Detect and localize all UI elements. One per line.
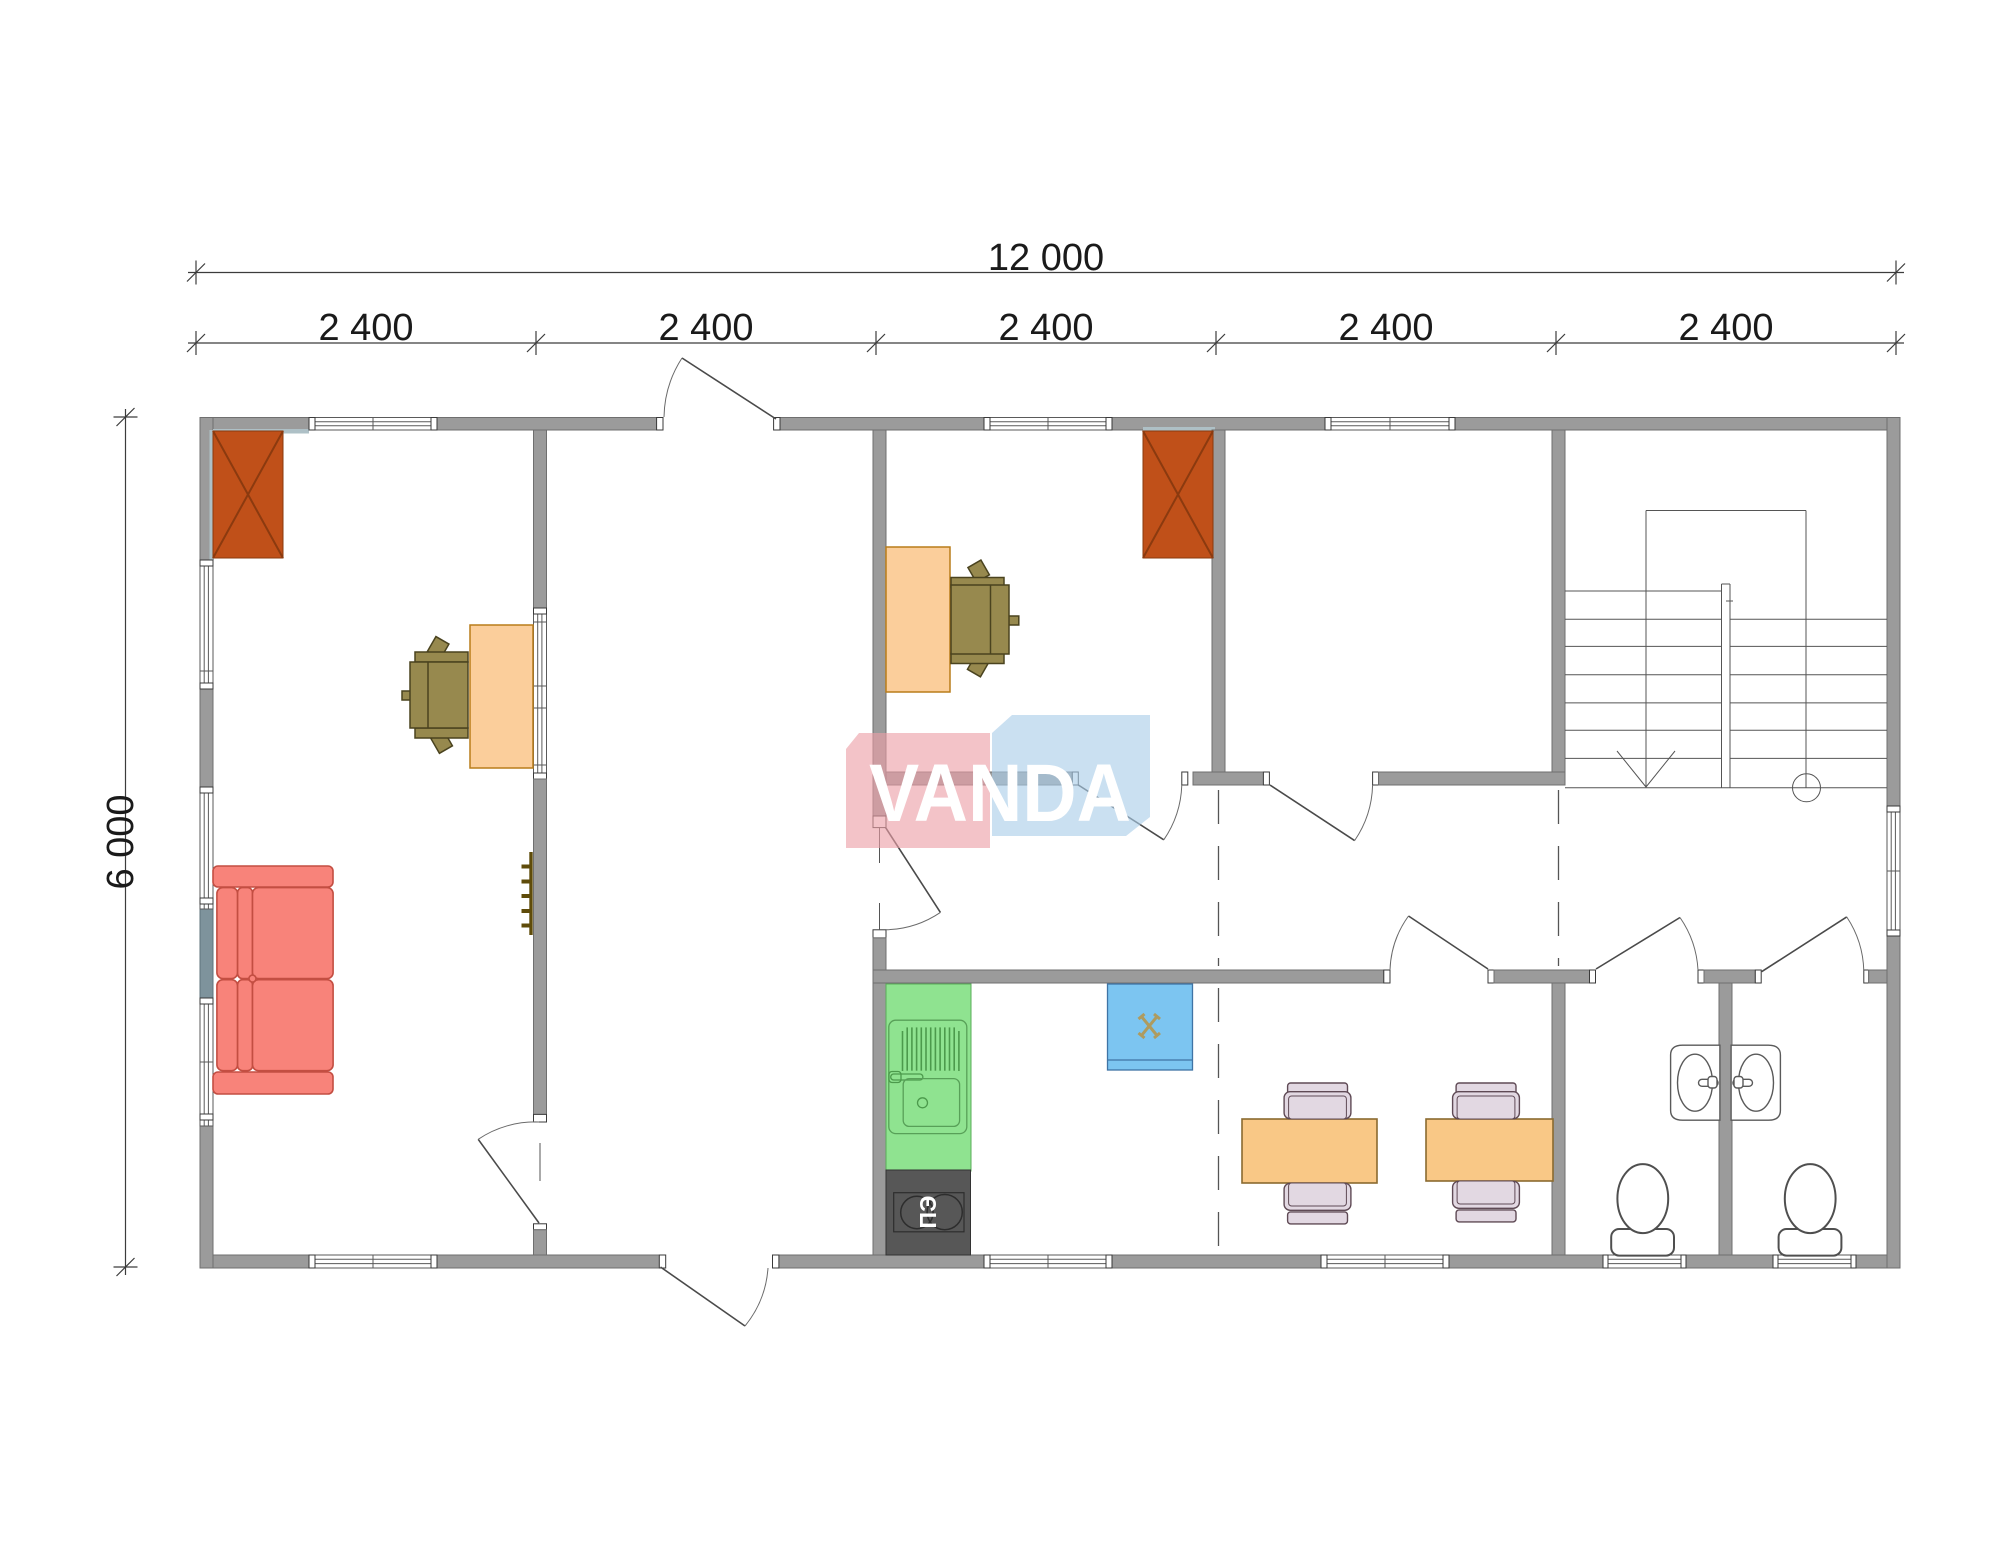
svg-text:6 000: 6 000 <box>100 794 142 889</box>
svg-text:2 400: 2 400 <box>1678 307 1773 349</box>
svg-text:VANDA: VANDA <box>869 748 1131 839</box>
svg-text:ПЭ: ПЭ <box>915 1196 941 1229</box>
svg-text:2 400: 2 400 <box>658 307 753 349</box>
svg-text:12 000: 12 000 <box>988 237 1104 279</box>
svg-text:2 400: 2 400 <box>318 307 413 349</box>
svg-text:2 400: 2 400 <box>998 307 1093 349</box>
svg-text:2 400: 2 400 <box>1338 307 1433 349</box>
